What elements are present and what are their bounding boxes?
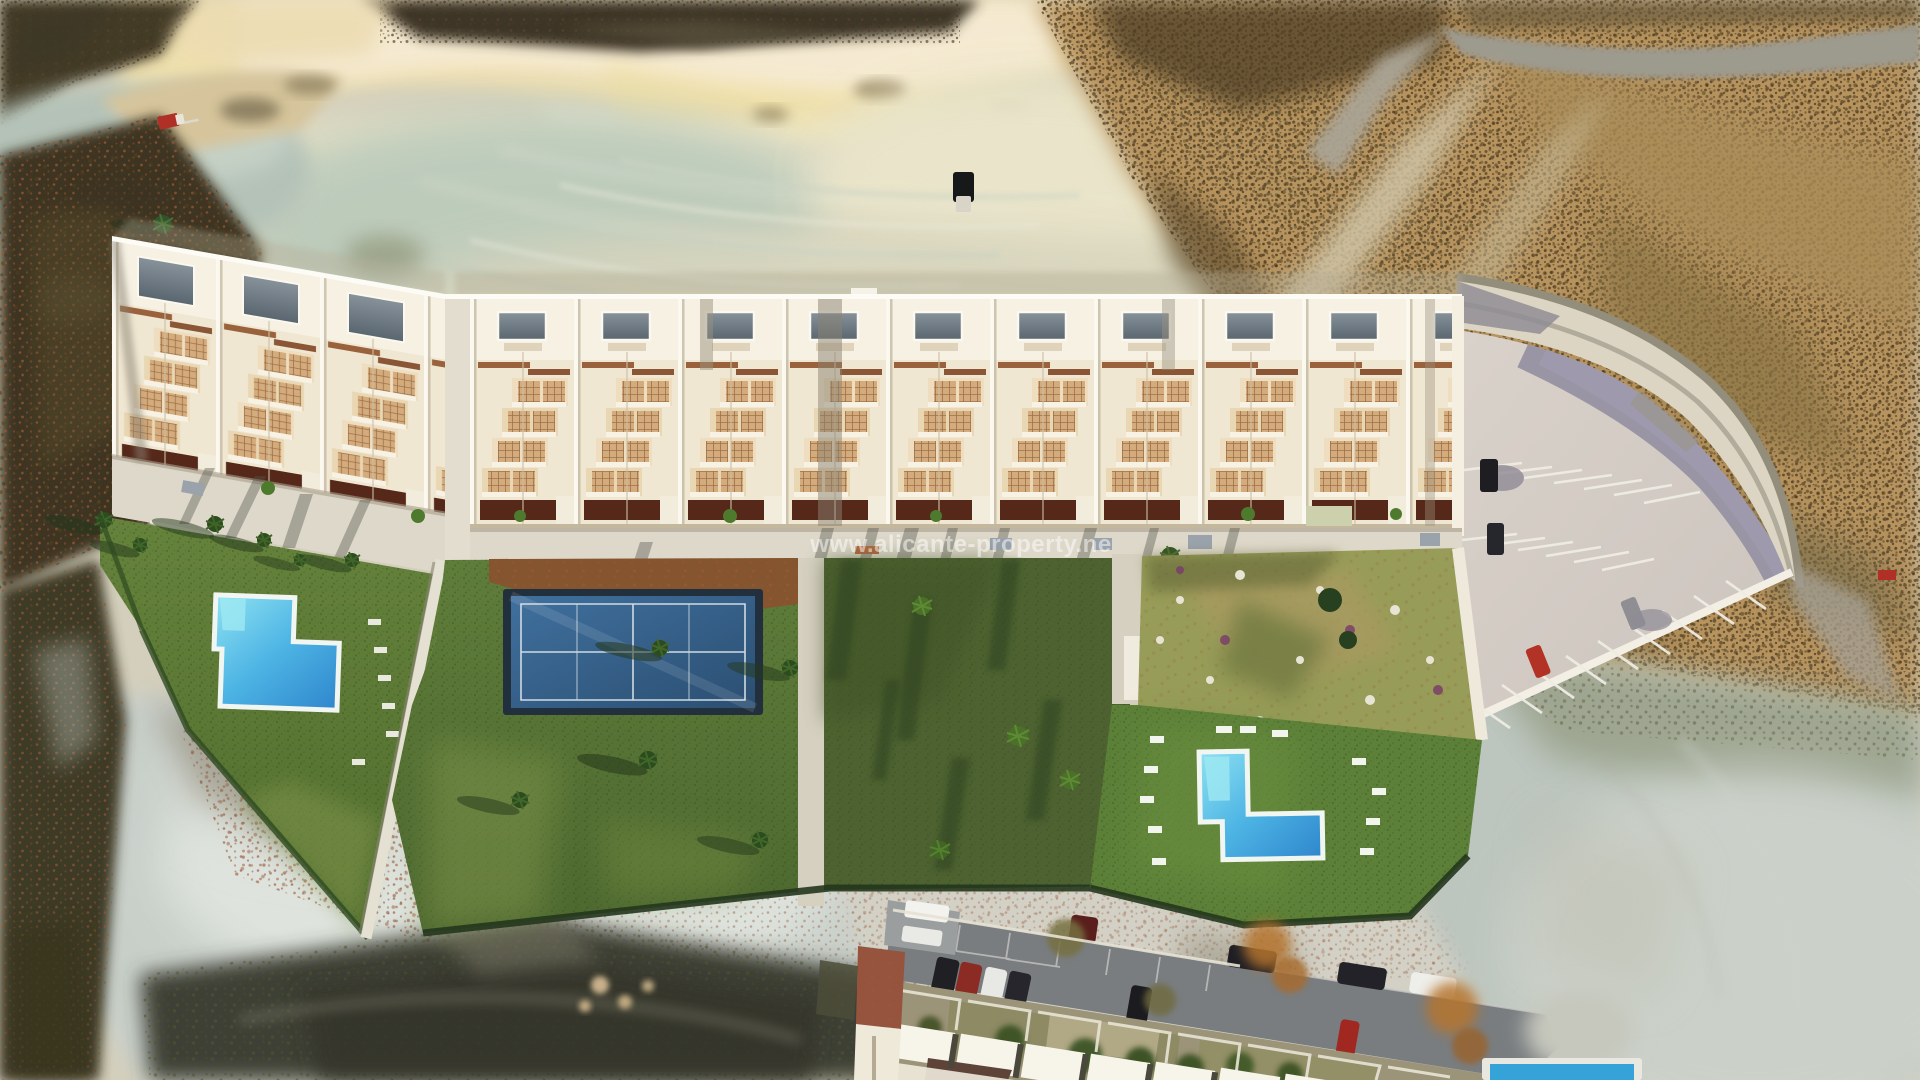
svg-text:www.alicante-property.ne: www.alicante-property.ne [809,531,1111,558]
